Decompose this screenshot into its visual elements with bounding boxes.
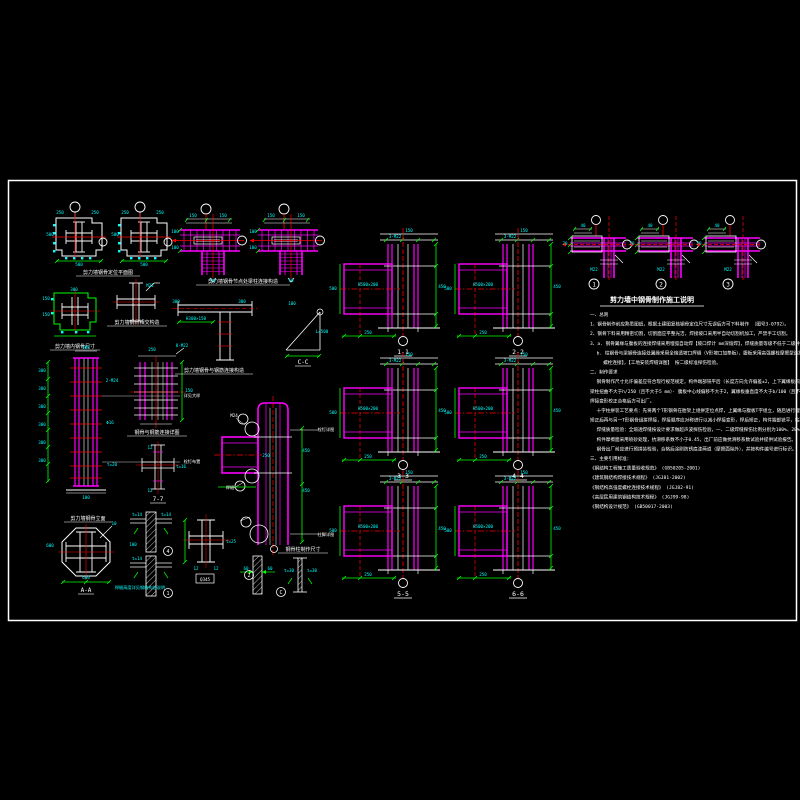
dim-label: 3-M22 — [504, 358, 517, 363]
note-line: 梁柱扭曲不大于h/250（且不大于5 mm）· 腹板中心线偏移不大于2，翼缘板垂… — [590, 388, 800, 395]
lgrid-detail — [250, 204, 325, 282]
dim-label: 150 — [185, 388, 193, 393]
caption-cross: 剪力墙钢骨相交构造 — [114, 319, 159, 326]
dim-label: 600 — [82, 575, 90, 580]
dim-label: M22 — [657, 267, 665, 272]
dim-label: 150 — [520, 228, 528, 233]
dim-label: 450 — [553, 526, 561, 531]
dim-label: H500×200 — [473, 524, 494, 529]
detail-small-grid — [130, 348, 186, 428]
dim-label: 150 — [267, 213, 275, 218]
dim-label: 500 — [329, 410, 337, 415]
dim-label: 500 — [444, 410, 452, 415]
dim-label: 3-M22 — [389, 234, 402, 239]
dim-label: 500 — [140, 262, 148, 267]
dim-label: 300 — [38, 422, 46, 427]
dim-label: 100 — [249, 245, 257, 250]
dim-label: 500 — [46, 232, 54, 237]
dim-label: L=500 — [316, 329, 329, 334]
dim-label: 8-M22 — [176, 343, 189, 348]
dim-label: 250 — [121, 210, 129, 215]
dim-label: 70 — [629, 241, 635, 246]
dim-label: 600 — [46, 543, 54, 548]
dim-label: 3-M22 — [504, 476, 517, 481]
dim-label: 12 — [193, 566, 199, 571]
dim-label: M22 — [724, 267, 732, 272]
dim-label: H500×200 — [358, 406, 379, 411]
dim-label: 焊缝 — [226, 484, 235, 491]
note-line: 2、钢骨下料采用精密切割，切割面应平整光洁，焊接坡口采用半自动切割机加工，严禁手… — [590, 330, 790, 337]
dim-label: t=14 — [132, 556, 143, 561]
dim-label: 500 — [329, 286, 337, 291]
dim-label: 450 — [553, 284, 561, 289]
dim-label: 40 — [580, 223, 586, 228]
caption-c-c: C-C — [298, 359, 309, 366]
dim-label: Q345 — [200, 577, 211, 582]
dim-label: M24 — [230, 413, 238, 418]
dim-label: 100 — [129, 542, 137, 547]
dim-label: 500 — [82, 345, 90, 350]
dim-label: 12 — [147, 488, 153, 493]
dim-label: 300 — [172, 299, 180, 304]
note-line: 《钢结构高强度螺栓连接技术规程》 (JGJ82-91) — [590, 484, 694, 491]
dim-label: 100 — [171, 229, 179, 234]
dim-label: 12 — [147, 445, 153, 450]
dim-label: 150 — [297, 213, 305, 218]
dim-label: 500 — [111, 232, 119, 237]
dim-label: 12 — [213, 566, 219, 571]
dim-label: 150 — [520, 352, 528, 357]
detail-column-callouts — [214, 396, 318, 556]
caption-a-a: A-A — [81, 587, 92, 594]
dim-label: t=25 — [226, 539, 237, 544]
dim-label: 500 — [444, 528, 452, 533]
dim-label: 300 — [238, 299, 246, 304]
dim-label: t=14 — [132, 512, 143, 517]
dim-label: 栓钉布置 — [184, 458, 201, 465]
dim-label: 250 — [56, 210, 64, 215]
dim-label: H500×200 — [358, 282, 379, 287]
dim-label: 150 — [219, 213, 227, 218]
note-line: 《高层民用建筑钢结构技术规程》 (JGJ99-98) — [590, 493, 689, 500]
section-detail — [455, 352, 555, 470]
dim-label: t=20 — [107, 462, 118, 467]
section-detail — [340, 470, 440, 588]
dim-label: 40 — [714, 223, 720, 228]
dim-label: 500 — [75, 262, 83, 267]
dim-label: t=30 — [307, 568, 318, 573]
note-line: 螺栓连接】，【工地安装焊缝详图】 按二级标准探伤检验。 — [603, 359, 721, 366]
note-line: 《建筑钢结构焊接技术规程》 (JGJ81-2002) — [590, 474, 686, 481]
circled-number-label: 3 — [726, 282, 730, 289]
dim-label: 250 — [156, 210, 164, 215]
note-line: 《钢结构设计规范》 (GB50017-2003) — [590, 503, 673, 510]
dim-label: 3-M22 — [389, 358, 402, 363]
dim-label: 100 — [249, 229, 257, 234]
section-detail — [340, 352, 440, 470]
dim-label: H300×150 — [186, 316, 207, 321]
dim-label: 150 — [42, 312, 50, 317]
note-line: 焊缝质量检验：全熔透焊缝按设计要求做超声波探伤检验，一、二级焊缝探伤比例分别为1… — [597, 426, 800, 433]
note-line: 构件摩擦面采用喷砂处理，抗滑移系数不小于0.45，出厂前应做抗滑移系数试验并提供… — [597, 436, 796, 443]
dim-label: 60 — [267, 566, 273, 571]
dim-label: H500×200 — [473, 406, 494, 411]
note-line: 3、a. 钢骨翼缘与腹板的连接焊缝采用埋弧自动焊【坡口焊计 mm深熔焊】，焊缝质… — [590, 340, 800, 347]
dim-label: 250 — [91, 210, 99, 215]
dim-label: 250 — [479, 572, 487, 577]
cad-drawing-canvas: 剪力墙钢骨定位平面图 剪力墙钢骨节点处梁柱连接构造 剪力墙钢骨相交构造 剪力墙内… — [0, 0, 800, 800]
caption-plan: 剪力墙钢骨定位平面图 — [83, 269, 133, 276]
dim-label: 250 — [479, 330, 487, 335]
dim-label: 250 — [364, 330, 372, 335]
dim-label: 150 — [405, 352, 413, 357]
circled-mark-label: 4 — [166, 549, 169, 555]
dim-label: 3-M22 — [504, 234, 517, 239]
dim-label: 250 — [364, 454, 372, 459]
dim-label: 300 — [38, 386, 46, 391]
circled-mark-label: C — [279, 590, 282, 596]
dim-label: 250 — [148, 347, 156, 352]
note-line: 钢骨制作尺寸允许偏差应符合现行规范规定，构件端部铣平后（长度方向允许偏差±2，上… — [597, 378, 800, 385]
note-line: 钢骨出厂前应进行预拼装检验，合格后涂刷防锈底漆两道（摩擦面除外），并按构件编号进… — [597, 445, 797, 452]
dim-label: 100 — [288, 301, 296, 306]
note-line: 《钢结构工程施工质量验收规范》 (GB50205-2001) — [590, 465, 700, 472]
dim-label: 150 — [405, 470, 413, 475]
circled-mark-label: 2 — [247, 573, 250, 579]
detail-bottom-sections — [240, 556, 312, 594]
note-line: 十字柱拼装工艺要点：先将两个T形钢骨在胎架上组拼定位点焊，上翼缘与腹板T字组立，… — [597, 407, 800, 414]
dim-label: 70 — [696, 241, 702, 246]
dim-label: 450 — [302, 448, 310, 453]
caption-7-7: 7-7 — [153, 496, 164, 503]
dim-label: 450 — [302, 488, 310, 493]
dim-label: 150 — [189, 213, 197, 218]
detail-t-joint — [172, 301, 258, 360]
dim-label: 300 — [70, 287, 78, 292]
dim-label: 100 — [82, 495, 90, 500]
circled-mark-label: 1 — [166, 591, 169, 597]
dim-label: 300 — [38, 458, 46, 463]
caption-lgrid: 剪力墙钢骨节点处梁柱连接构造 — [208, 278, 278, 285]
dim-label: t=30 — [284, 568, 295, 573]
dim-label: 柱脚详图 — [318, 531, 335, 538]
dim-label: 100 — [171, 245, 179, 250]
dim-label: 40 — [647, 223, 653, 228]
dim-label: 3-M22 — [389, 476, 402, 481]
circled-number-label: 1 — [592, 282, 596, 289]
detail-cross-7-7 — [136, 441, 180, 494]
caption-t-joint: 剪力墙钢骨与钢筋连接构造 — [184, 367, 244, 374]
dim-label: 300 — [38, 368, 46, 373]
caption-elevation: 剪力墙钢骨立面 — [70, 515, 105, 522]
dim-label: 详见大样 — [184, 392, 201, 399]
dim-label: M22 — [146, 283, 154, 288]
notes-block: 一、总则1、钢骨制作前应熟悉图纸，根据土建图复核钢骨定位尺寸无误后方可下料制作 … — [590, 311, 800, 510]
dim-label: M22 — [590, 267, 598, 272]
detail-green-plan — [50, 289, 100, 336]
lgrid-detail — [172, 204, 247, 282]
detail-cross-section-large — [183, 514, 231, 583]
dim-label: 250 — [364, 572, 372, 577]
section-label: 5-5 — [397, 590, 409, 598]
dim-label: 450 — [553, 408, 561, 413]
caption-small-grid: 钢骨与钢筋连接详图 — [134, 429, 179, 436]
dim-label: 300 — [38, 404, 46, 409]
dim-label: 150 — [405, 228, 413, 233]
dim-label: 150 — [42, 296, 50, 301]
dim-label: Φ16 — [106, 420, 114, 425]
circled-number-label: 2 — [659, 282, 663, 289]
dim-label: 70 — [562, 241, 568, 246]
dim-label: 50 — [288, 278, 294, 283]
note-line: 三、主要引用标准： — [590, 455, 631, 462]
dim-label: 150 — [520, 470, 528, 475]
dim-label: 250 — [479, 454, 487, 459]
note-line: 一、总则 — [590, 311, 609, 318]
dim-label: 焊缝高度详见钢结构总说明 — [115, 584, 165, 591]
dim-label: 栓钉详图 — [318, 426, 335, 433]
dim-label: 250 — [262, 453, 270, 458]
dim-label: 50 — [210, 278, 216, 283]
caption-column: 钢骨柱制作尺寸 — [285, 546, 320, 553]
section-label: 6-6 — [512, 590, 524, 598]
dim-label: H500×200 — [473, 282, 494, 287]
dim-label: 10 — [111, 521, 117, 526]
note-line: 1、钢骨制作前应熟悉图纸，根据土建图复核钢骨定位尺寸无误后方可下料制作 （图号3… — [590, 321, 789, 328]
note-line: 二、制作要求 — [590, 369, 618, 376]
section-detail — [455, 228, 555, 346]
note-line: 焊接变形校正合格后方可出厂。 — [590, 397, 654, 404]
dim-label: t=14 — [161, 512, 172, 517]
note-line: 矫正后再与另一T形钢骨组拼焊接，焊接顺序应对称进行以减小焊接变形，焊后矫正，构件… — [590, 417, 800, 424]
dim-label: 500 — [444, 286, 452, 291]
dim-label: H500×200 — [358, 524, 379, 529]
dim-label: t=16 — [176, 464, 187, 469]
note-line: b. 柱钢骨与梁钢骨连接处翼缘采用全熔透坡口焊缝（V形坡口加垫板），腹板采用高强… — [597, 349, 800, 356]
dim-label: 2-M24 — [106, 378, 119, 383]
section-detail — [340, 228, 440, 346]
section-detail — [455, 470, 555, 588]
notes-title: 剪力墙中钢骨制作施工说明 — [610, 295, 694, 304]
dim-label: 300 — [38, 440, 46, 445]
